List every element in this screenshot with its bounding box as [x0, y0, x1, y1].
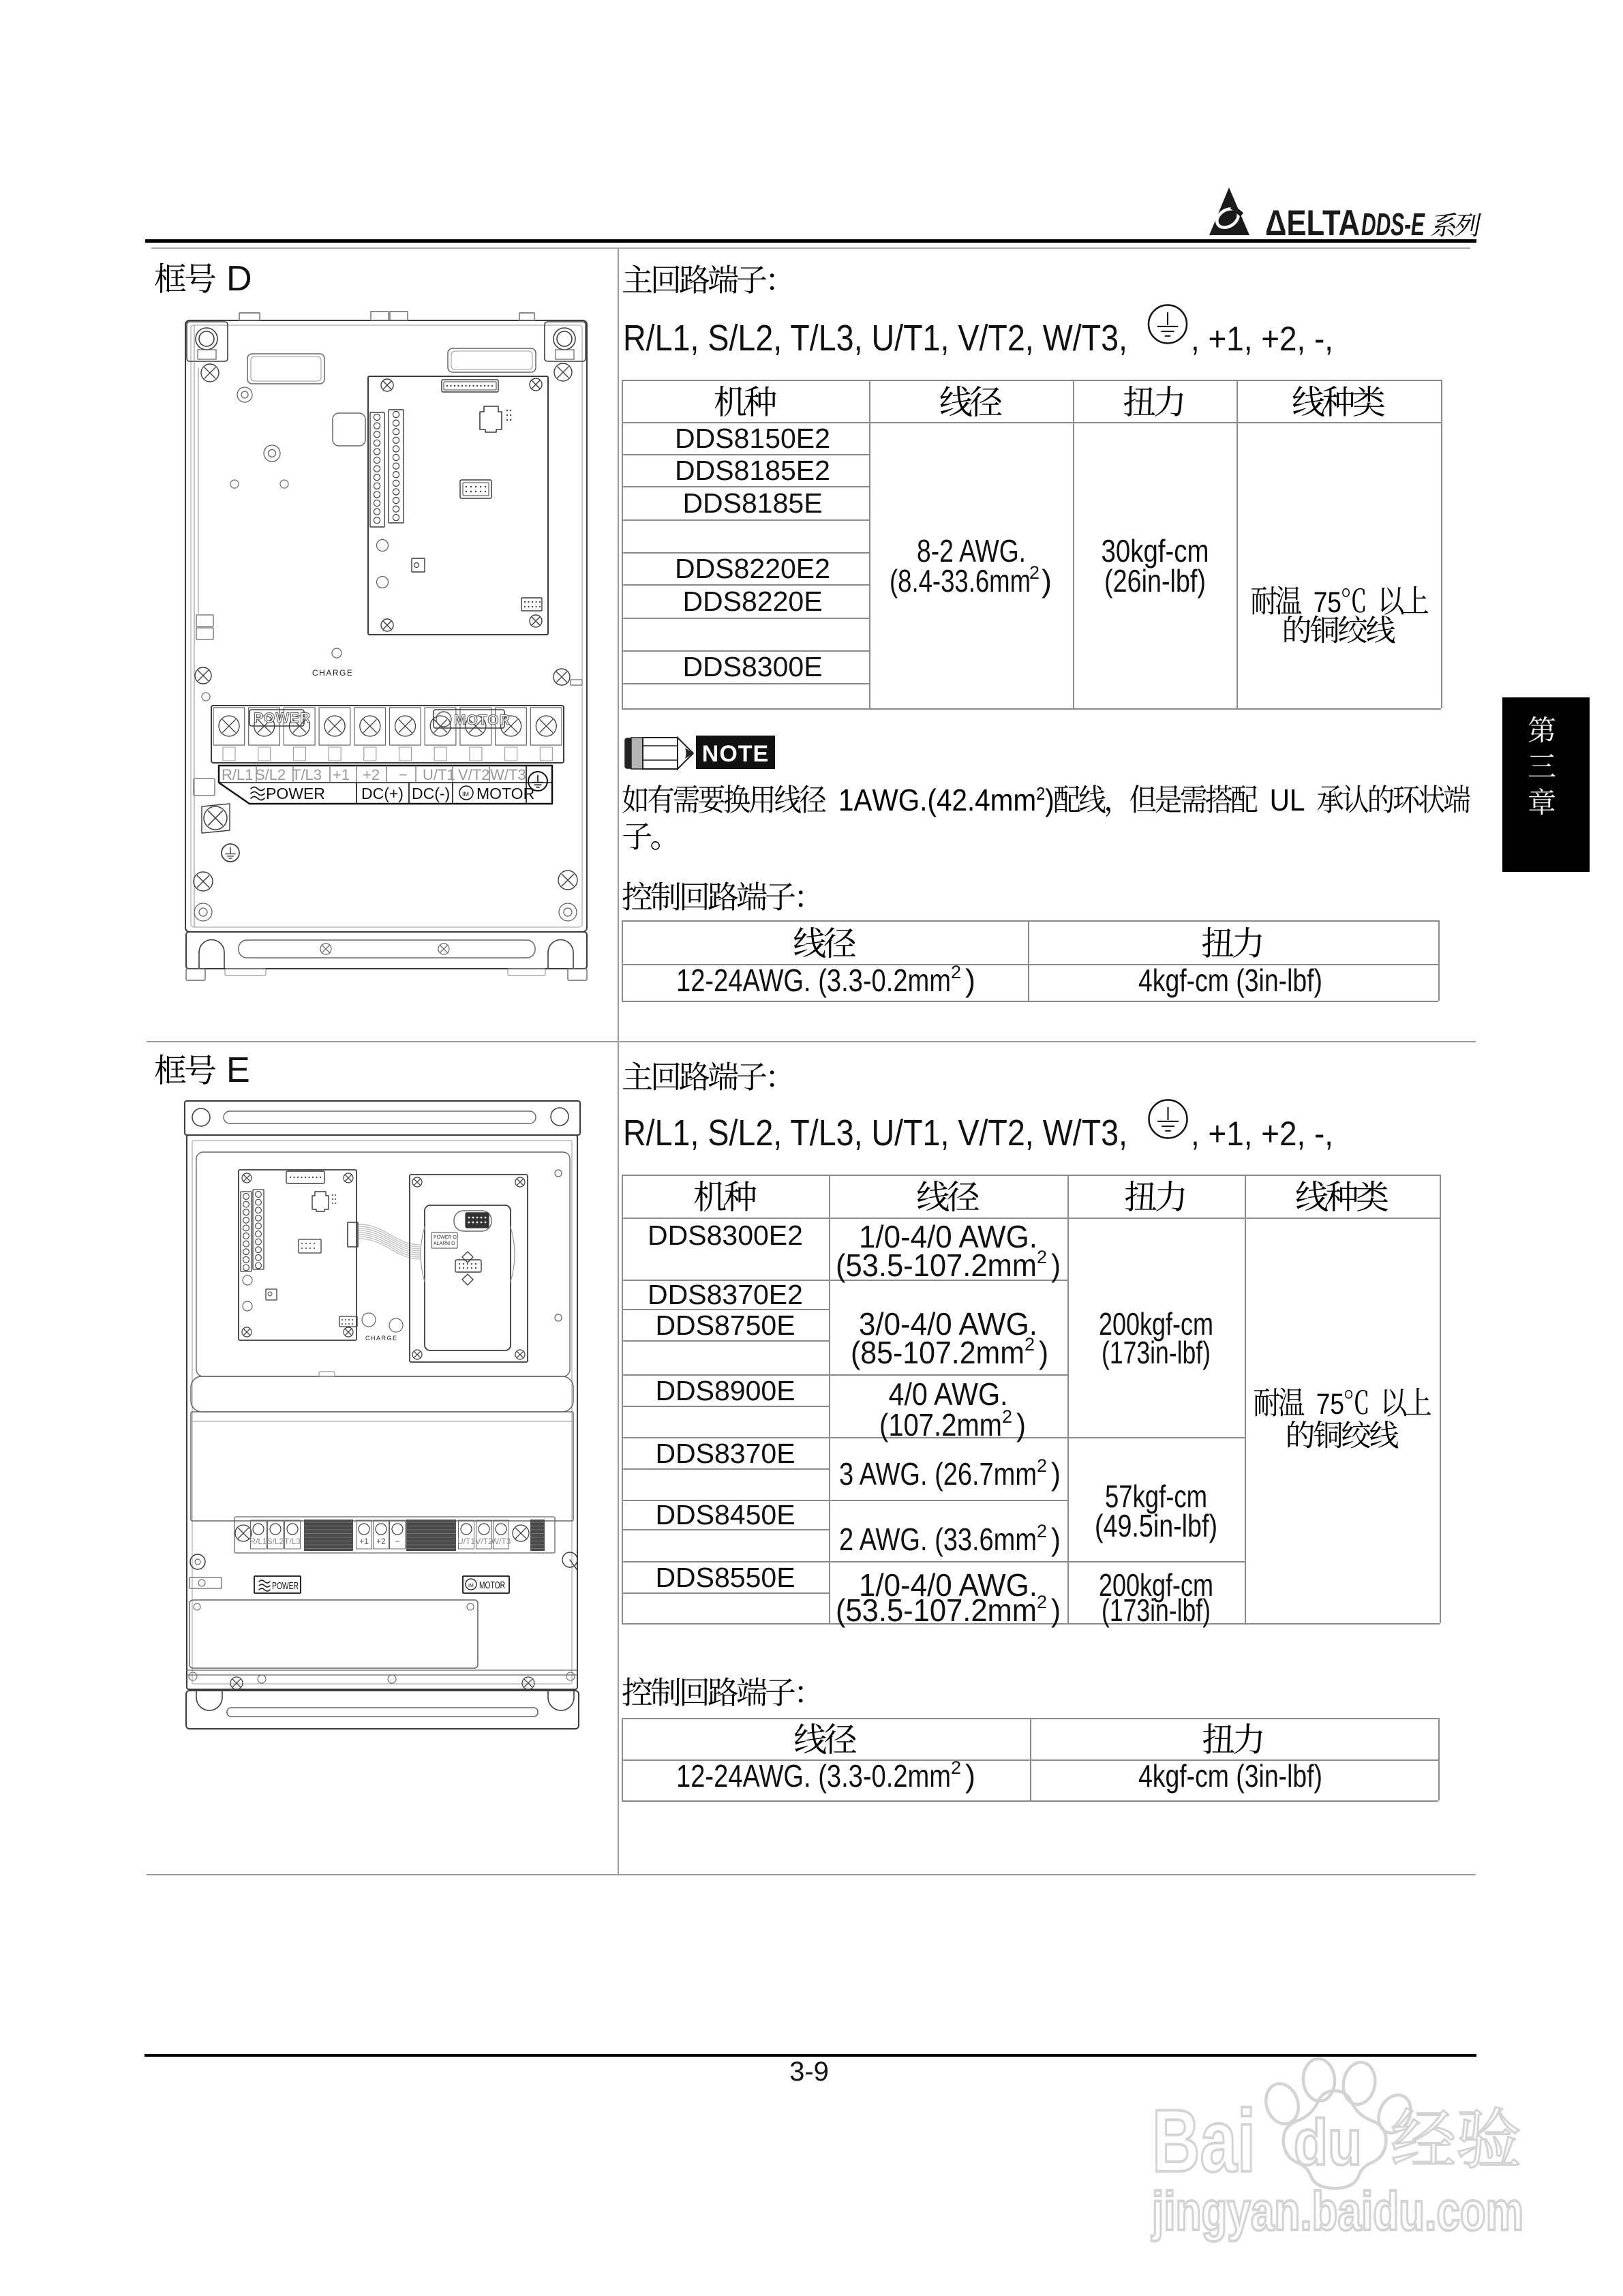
svg-text:V/T2: V/T2 [458, 766, 489, 783]
svg-text:CHARGE: CHARGE [312, 668, 353, 678]
svg-text:E: E [226, 1051, 250, 1090]
svg-text:12-24AWG. (3.3-0.2mm: 12-24AWG. (3.3-0.2mm [676, 1758, 951, 1794]
svg-text:): ) [1051, 1522, 1061, 1557]
svg-text:2: 2 [951, 1757, 961, 1778]
svg-text:POWER O: POWER O [434, 1235, 457, 1240]
svg-text:DDS8450E: DDS8450E [655, 1499, 795, 1530]
svg-text:4kgf-cm (3in-lbf): 4kgf-cm (3in-lbf) [1138, 1758, 1322, 1794]
svg-text:(173in-lbf): (173in-lbf) [1102, 1335, 1211, 1370]
svg-text:POWER: POWER [272, 1580, 299, 1592]
svg-text:MOTOR: MOTOR [476, 785, 534, 802]
svg-text:DC(+): DC(+) [361, 785, 404, 802]
svg-text:): ) [1042, 563, 1052, 599]
svg-text:+2: +2 [376, 1537, 386, 1546]
svg-text:−: − [399, 766, 408, 783]
svg-text:DDS8150E2: DDS8150E2 [675, 423, 830, 454]
svg-text:+1: +1 [333, 766, 350, 783]
svg-text:): ) [1051, 1456, 1061, 1492]
svg-text:2: 2 [1037, 1592, 1047, 1612]
svg-text:12-24AWG. (3.3-0.2mm: 12-24AWG. (3.3-0.2mm [676, 963, 951, 998]
svg-text:2: 2 [951, 962, 961, 982]
svg-text:, +1, +2, -,: , +1, +2, -, [1191, 1115, 1333, 1153]
svg-text:W/T3: W/T3 [491, 1537, 511, 1546]
svg-text:U/T1: U/T1 [457, 1537, 475, 1546]
svg-text:): ) [1016, 1407, 1026, 1442]
svg-text:DDS8185E2: DDS8185E2 [675, 455, 830, 486]
svg-text:MOTOR: MOTOR [479, 1580, 505, 1591]
svg-text:CHARGE: CHARGE [365, 1335, 398, 1342]
svg-text:(53.5-107.2mm: (53.5-107.2mm [836, 1248, 1037, 1283]
svg-text:, +1, +2, -,: , +1, +2, -, [1191, 320, 1333, 358]
svg-text:DDS8900E: DDS8900E [655, 1375, 795, 1406]
svg-text:DDS8185E: DDS8185E [682, 487, 822, 519]
svg-text:DDS8750E: DDS8750E [655, 1310, 795, 1341]
svg-text:S/L2: S/L2 [267, 1537, 284, 1546]
svg-text:+2: +2 [363, 766, 380, 783]
svg-text:(8.4-33.6mm: (8.4-33.6mm [890, 563, 1031, 599]
svg-text:(49.5in-lbf): (49.5in-lbf) [1095, 1508, 1217, 1543]
svg-text:(173in-lbf): (173in-lbf) [1102, 1592, 1211, 1628]
svg-text:): ) [1051, 1592, 1061, 1628]
svg-text:2: 2 [1037, 1247, 1047, 1267]
svg-text:IM: IM [468, 1584, 474, 1588]
svg-text:IM: IM [462, 791, 469, 798]
svg-text:DC(-): DC(-) [412, 785, 450, 802]
svg-text:ALARM O: ALARM O [434, 1241, 455, 1246]
svg-text:R/L1: R/L1 [222, 766, 253, 783]
svg-text:2: 2 [1002, 1406, 1012, 1427]
svg-text:): ) [965, 1758, 975, 1794]
svg-text:(85-107.2mm: (85-107.2mm [851, 1335, 1025, 1370]
svg-text:POWER: POWER [266, 785, 325, 802]
svg-text:DDS8370E: DDS8370E [655, 1438, 795, 1469]
svg-text:R/L1, S/L2, T/L3, U/T1, V/T2,: R/L1, S/L2, T/L3, U/T1, V/T2, W/T3, [623, 1113, 1127, 1153]
svg-text:jingyan.baidu.com: jingyan.baidu.com [1151, 2181, 1523, 2241]
svg-text:V/T2: V/T2 [475, 1537, 493, 1546]
svg-text:T/L3: T/L3 [284, 1537, 301, 1546]
svg-text:D: D [226, 259, 252, 299]
svg-text:R/L1, S/L2, T/L3, U/T1, V/T2,: R/L1, S/L2, T/L3, U/T1, V/T2, W/T3, [623, 318, 1127, 359]
svg-text:+1: +1 [359, 1537, 369, 1546]
svg-text:DDS8300E2: DDS8300E2 [648, 1220, 803, 1251]
svg-text:T/L3: T/L3 [292, 766, 322, 783]
svg-text:): ) [1039, 1335, 1048, 1370]
svg-text:4kgf-cm (3in-lbf): 4kgf-cm (3in-lbf) [1138, 963, 1322, 998]
svg-text:DDS-E: DDS-E [1361, 207, 1425, 242]
svg-text:DDS8220E: DDS8220E [682, 586, 822, 617]
svg-text:DDS8300E: DDS8300E [682, 651, 822, 682]
svg-text:2: 2 [1037, 1455, 1047, 1476]
svg-text:W/T3: W/T3 [490, 766, 526, 783]
svg-text:(53.5-107.2mm: (53.5-107.2mm [836, 1592, 1037, 1628]
svg-text:DDS8220E2: DDS8220E2 [675, 553, 830, 584]
svg-text:3-9: 3-9 [789, 2057, 829, 2087]
svg-text:R/L1: R/L1 [249, 1537, 267, 1546]
svg-text:POWER: POWER [254, 710, 311, 726]
svg-text:(107.2mm: (107.2mm [879, 1407, 1002, 1442]
svg-text:−: − [395, 1537, 399, 1546]
svg-text:): ) [965, 963, 975, 998]
svg-text:Bai: Bai [1152, 2091, 1256, 2190]
svg-text:): ) [1051, 1248, 1061, 1283]
svg-text:DDS8550E: DDS8550E [655, 1562, 795, 1593]
svg-text:2 AWG. (33.6mm: 2 AWG. (33.6mm [839, 1522, 1037, 1557]
svg-text:2: 2 [1037, 1521, 1047, 1541]
svg-text:2: 2 [1029, 562, 1040, 583]
svg-text:2: 2 [1025, 1334, 1035, 1355]
svg-text:MOTOR: MOTOR [454, 712, 511, 728]
svg-text:U/T1: U/T1 [423, 766, 455, 783]
svg-text:(26in-lbf): (26in-lbf) [1104, 563, 1206, 599]
svg-text:3 AWG. (26.7mm: 3 AWG. (26.7mm [839, 1456, 1037, 1492]
svg-text:ΔELTA: ΔELTA [1265, 203, 1360, 243]
svg-text:DDS8370E2: DDS8370E2 [648, 1279, 803, 1310]
svg-text:S/L2: S/L2 [255, 766, 286, 783]
